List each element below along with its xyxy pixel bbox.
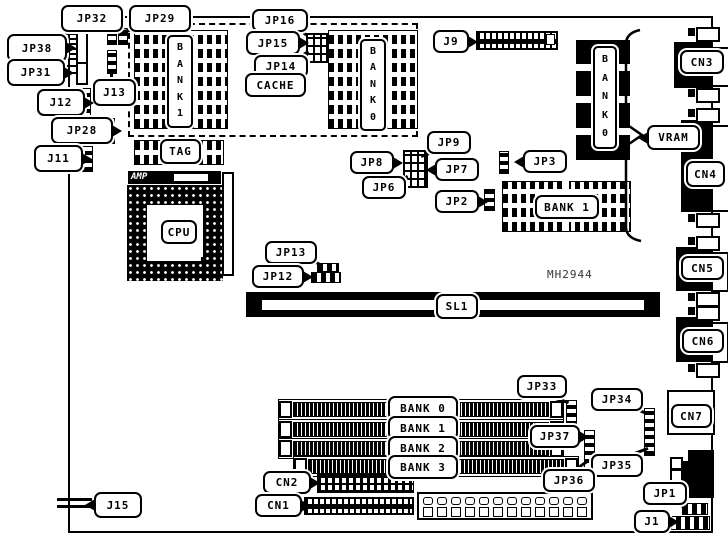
label-jp31-text: JP31: [21, 66, 52, 79]
jp12-jumper: [311, 272, 341, 283]
label-jp32-text: JP32: [77, 12, 108, 25]
label-cn1: CN1: [255, 494, 302, 517]
motherboard-diagram: B A N K 1 B A N K 0 TAG AMP CPU SL1 MH29…: [0, 0, 728, 536]
label-cn1-text: CN1: [267, 499, 290, 512]
label-jp16-text: JP16: [265, 14, 296, 27]
tag-label: TAG: [160, 139, 201, 164]
simm-clip: [279, 440, 292, 457]
label-jp2-text: JP2: [446, 195, 469, 208]
mount-tab: [696, 213, 720, 228]
label-jp9-text: JP9: [438, 136, 461, 149]
bank3-label-text: BANK 3: [400, 461, 446, 474]
mount-tab: [696, 292, 720, 307]
label-jp16: JP16: [252, 9, 308, 32]
mount-nub: [688, 364, 695, 372]
jp14-jp15-jp16-block: [306, 33, 328, 63]
vram-bank0-label: B A N K 0: [593, 46, 617, 149]
label-cn6: CN6: [682, 329, 724, 353]
simm-clip: [550, 401, 563, 418]
mount-nub: [688, 237, 695, 245]
cache-bank1-label-text: B A N K 1: [177, 40, 183, 123]
label-jp37: JP37: [530, 425, 580, 448]
label-j13-text: J13: [103, 86, 126, 99]
pointer-right-icon: [478, 196, 488, 208]
label-j12-text: J12: [50, 96, 73, 109]
sl1-label: SL1: [436, 294, 478, 319]
pointer-right-icon: [303, 271, 313, 283]
pointer-left-icon: [426, 164, 436, 176]
sl1-label-text: SL1: [446, 300, 469, 313]
mount-nub: [688, 109, 695, 117]
label-cn5: CN5: [681, 256, 724, 280]
simm-clip: [279, 421, 292, 438]
label-jp7-text: JP7: [446, 163, 469, 176]
bank0-label-text: BANK 0: [400, 402, 446, 415]
label-jp37-text: JP37: [540, 430, 571, 443]
pointer-right-icon: [393, 157, 403, 169]
bank3-label: BANK 3: [388, 455, 458, 479]
cpu-label: CPU: [161, 220, 197, 244]
mount-tab: [696, 363, 720, 378]
jp38-header: [76, 30, 88, 66]
pointer-right-icon: [66, 42, 76, 54]
label-jp38-text: JP38: [22, 42, 53, 55]
label-cn3: CN3: [680, 50, 724, 74]
simm-clip: [279, 401, 292, 418]
label-jp29-text: JP29: [145, 12, 176, 25]
bank2-label-text: BANK 2: [400, 442, 446, 455]
label-jp15: JP15: [246, 31, 300, 55]
label-jp8: JP8: [350, 151, 394, 174]
pointer-right-icon: [112, 125, 122, 137]
label-jp38: JP38: [7, 34, 67, 62]
label-jp32: JP32: [61, 5, 123, 32]
label-cn6-text: CN6: [692, 335, 715, 348]
label-jp12-text: JP12: [263, 270, 294, 283]
bank1-label-text: BANK 1: [400, 422, 446, 435]
vram-bank1-label: BANK 1: [535, 195, 599, 219]
label-vram: VRAM: [647, 125, 700, 150]
cache-bank1-label: B A N K 1: [167, 35, 193, 128]
power-connector: [417, 492, 593, 520]
vram-bank1-label-text: BANK 1: [544, 201, 590, 214]
label-jp36: JP36: [543, 469, 595, 492]
pointer-left-icon: [514, 156, 524, 168]
label-jp35: JP35: [591, 454, 643, 477]
part-number-text: MH2944: [547, 268, 593, 281]
keyboard-connector: [688, 450, 714, 498]
jp1-jumper: [682, 503, 708, 515]
mount-nub: [688, 293, 695, 301]
label-jp28: JP28: [51, 117, 113, 144]
label-j13: J13: [93, 79, 136, 106]
jp31-header: [76, 62, 88, 85]
label-jp35-text: JP35: [602, 459, 633, 472]
amp-window: [174, 174, 208, 181]
label-jp33: JP33: [517, 375, 567, 398]
label-jp13-text: JP13: [276, 246, 307, 259]
jp3-jumper: [499, 151, 509, 174]
label-jp12: JP12: [252, 265, 304, 288]
label-j11-text: J11: [47, 152, 70, 165]
pointer-right-icon: [669, 516, 679, 528]
label-cn4: CN4: [686, 161, 725, 187]
cpu-label-text: CPU: [168, 226, 191, 239]
pointer-right-icon: [82, 153, 92, 165]
label-j1-text: J1: [644, 515, 659, 528]
vram-bank0-label-text: B A N K 0: [602, 51, 608, 144]
pointer-right-icon: [579, 431, 589, 443]
pointer-left-icon: [85, 499, 95, 511]
label-jp3-text: JP3: [534, 155, 557, 168]
label-j15: J15: [94, 492, 142, 518]
pointer-right-icon: [310, 477, 320, 489]
label-cache: CACHE: [245, 73, 306, 97]
tag-label-text: TAG: [169, 145, 192, 158]
board-part-number: MH2944: [547, 268, 593, 281]
label-cache-text: CACHE: [256, 79, 294, 92]
j9-header-end: [546, 34, 555, 45]
label-jp6-text: JP6: [373, 181, 396, 194]
label-vram-text: VRAM: [658, 131, 689, 144]
jp33-jumper: [566, 400, 577, 426]
label-jp1: JP1: [643, 482, 687, 505]
label-cn3-text: CN3: [691, 56, 714, 69]
mount-tab: [696, 108, 720, 123]
label-j9-text: J9: [443, 35, 458, 48]
mount-tab: [696, 236, 720, 251]
label-jp6: JP6: [362, 176, 406, 199]
label-cn7-text: CN7: [680, 410, 703, 423]
pointer-left-icon: [638, 132, 648, 144]
power-pins-bottom: [423, 507, 587, 517]
label-cn2-text: CN2: [276, 476, 299, 489]
label-cn4-text: CN4: [694, 168, 717, 181]
pointer-right-icon: [299, 37, 309, 49]
power-pins-top: [423, 497, 587, 505]
mount-tab: [696, 306, 720, 321]
label-j11: J11: [34, 145, 83, 172]
mount-tab: [696, 88, 720, 103]
pointer-right-icon: [301, 500, 311, 512]
label-jp31: JP31: [7, 59, 65, 86]
label-j15-text: J15: [107, 499, 130, 512]
label-cn5-text: CN5: [691, 262, 714, 275]
label-cn2: CN2: [263, 471, 311, 494]
label-j9: J9: [433, 30, 469, 53]
mount-nub: [688, 89, 695, 97]
label-jp9: JP9: [427, 131, 471, 154]
label-j12: J12: [37, 89, 85, 116]
label-jp29: JP29: [129, 5, 191, 32]
label-jp13: JP13: [265, 241, 317, 264]
amp-socket-bar: AMP: [128, 171, 221, 184]
label-jp3: JP3: [523, 150, 567, 173]
label-jp14-text: JP14: [266, 60, 297, 73]
keyboard-cap: [670, 469, 683, 482]
label-jp8-text: JP8: [361, 156, 384, 169]
mount-nub: [688, 214, 695, 222]
label-jp33-text: JP33: [527, 380, 558, 393]
label-jp34-text: JP34: [602, 393, 633, 406]
cn1-header: [304, 497, 414, 515]
label-jp36-text: JP36: [554, 474, 585, 487]
label-jp34: JP34: [591, 388, 643, 411]
pointer-right-icon: [64, 67, 74, 79]
label-jp1-text: JP1: [654, 487, 677, 500]
socket-lever: [222, 172, 234, 276]
mount-nub: [688, 307, 695, 315]
mount-nub: [688, 28, 695, 36]
pointer-right-icon: [84, 97, 94, 109]
label-jp2: JP2: [435, 190, 479, 213]
mount-tab: [696, 27, 720, 42]
cache-bank0-label: B A N K 0: [360, 39, 386, 131]
label-jp15-text: JP15: [258, 37, 289, 50]
label-jp28-text: JP28: [67, 124, 98, 137]
cpu-pin1-dot: [201, 257, 206, 262]
label-jp7: JP7: [435, 158, 479, 181]
label-j1: J1: [634, 510, 670, 533]
label-cn7: CN7: [671, 404, 712, 428]
pointer-right-icon: [468, 36, 478, 48]
amp-text: AMP: [131, 172, 147, 182]
cache-bank0-label-text: B A N K 0: [370, 44, 376, 127]
